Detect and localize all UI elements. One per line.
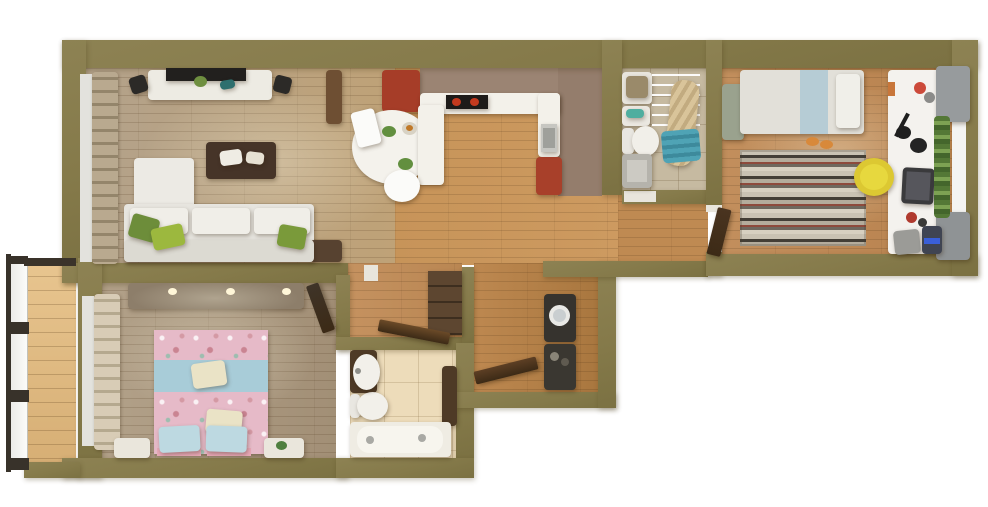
hall-vase-2 [561, 358, 569, 366]
sofa-pillow-green-2 [276, 224, 307, 251]
balcony-header-plank [24, 258, 76, 266]
fruit [406, 125, 413, 131]
living-curtain [92, 72, 118, 264]
window-plant-curtain [934, 116, 950, 218]
bathroom-cabinet [442, 366, 457, 426]
wc-door-threshold [624, 191, 656, 202]
balcony-frame-bar-3 [8, 458, 29, 470]
balcony-frame-bar-1 [8, 322, 29, 334]
wardrobe-light-1 [168, 288, 177, 295]
slipper-2 [820, 140, 833, 149]
bed-pillow [836, 74, 860, 128]
desk-chair-gray [893, 229, 921, 256]
sofa-side-table [310, 240, 342, 262]
hall-vase-1 [550, 352, 559, 361]
desk-chair-yellow-seat [860, 164, 888, 190]
magazine-2 [245, 151, 264, 165]
kitchen-sink-basin [543, 128, 555, 148]
balcony-frame-bar-2 [8, 390, 29, 402]
balcony-floor [26, 262, 76, 470]
hall-cabinet [544, 344, 576, 390]
wall-living-kids [62, 263, 348, 283]
nook-door-jamb [364, 265, 378, 281]
wall-balcony-bottom [24, 462, 80, 478]
laptop-screen [905, 171, 930, 200]
living-side-cabinet [326, 70, 342, 124]
wall-top [62, 40, 978, 68]
balcony-frame-left [6, 254, 11, 472]
cooktop-burner-2 [470, 98, 479, 106]
cooktop-burner-1 [452, 98, 461, 106]
kids-pillow-blue-1 [158, 425, 200, 453]
balcony-glazing [8, 256, 28, 470]
wall-bathroom-bottom [336, 458, 474, 478]
kitchen-cabinet-red-top [382, 70, 420, 112]
kids-pillow-cream-1 [190, 360, 227, 389]
nightstand-left [114, 438, 150, 458]
console-plant [194, 76, 207, 87]
wall-kids-bottom [62, 458, 348, 478]
magazine-1 [219, 149, 243, 167]
kitchen-counter-left [418, 105, 444, 185]
sofa-chaise [134, 158, 194, 208]
living-window [80, 74, 92, 262]
wc-basket [626, 76, 648, 98]
wardrobe-light-2 [226, 288, 235, 295]
wall-kitchen-wc [602, 40, 622, 195]
desk-mug-1 [914, 82, 926, 94]
dining-chair-2 [384, 170, 420, 202]
dining-plate-2 [398, 158, 413, 170]
nightstand-plant [276, 441, 287, 450]
printer-blue-stripe [924, 238, 940, 244]
wall-wc-bedroom-upper [706, 40, 722, 207]
dining-plate-1 [382, 126, 396, 137]
wc-toilet-bowl [632, 126, 659, 156]
desk-mug-2 [924, 92, 935, 103]
wc-towel-pile [661, 128, 702, 163]
bathroom-faucet [355, 368, 361, 374]
kids-window [82, 296, 94, 446]
desk-item-orange [888, 82, 895, 96]
bedroom-cabinet-gray-top [936, 66, 970, 122]
slipper-1 [806, 137, 819, 146]
desk-cup-red [906, 212, 917, 223]
kitchen-cabinet-red-bottom [536, 157, 562, 195]
wall-hall-right [598, 261, 616, 408]
hall-chest-drawers [428, 271, 462, 335]
kids-pillow-blue-2 [206, 425, 248, 452]
wall-nook-divider [462, 267, 474, 343]
wc-towel-teal [626, 109, 644, 118]
wall-hall-bottom [456, 392, 616, 408]
floorplan [0, 0, 988, 507]
bathroom-toilet-bowl [357, 392, 388, 420]
bedroom-rug [740, 150, 866, 246]
wc-washbasin-inner [627, 160, 647, 182]
desk-lamp-head [896, 126, 911, 139]
wall-hall-top [543, 261, 708, 277]
desk-headset [910, 138, 927, 153]
bed-runner-blue [800, 70, 828, 134]
kids-curtain [94, 294, 120, 450]
bathtub-handle-1 [366, 436, 374, 444]
wardrobe-light-3 [282, 288, 291, 295]
hall-mirror-inner [553, 309, 566, 322]
kitchen-backsplash-right [558, 68, 602, 196]
wardrobe-light-pool [130, 283, 300, 317]
sofa-cushion-2 [192, 208, 250, 234]
bathtub-handle-2 [418, 434, 426, 442]
